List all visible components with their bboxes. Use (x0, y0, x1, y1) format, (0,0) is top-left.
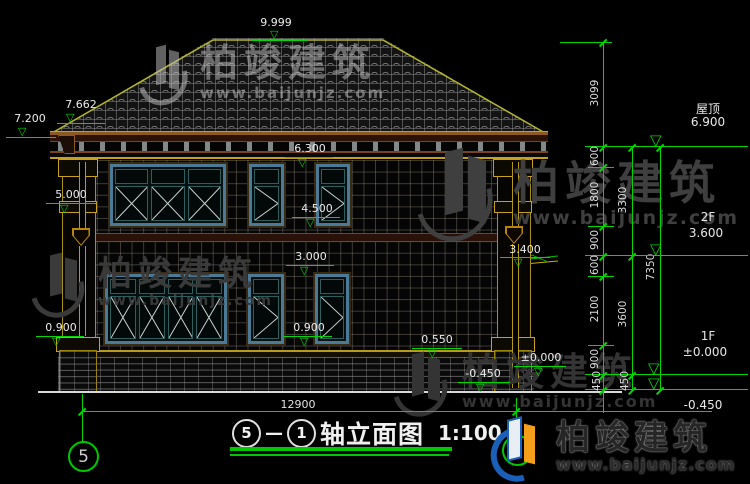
level-triangle-icon: ▽ (514, 258, 522, 268)
dim-chain-middle (632, 147, 633, 390)
title-axis-start: 5 (232, 419, 261, 448)
mark-0550-label: 0.550 (414, 333, 460, 346)
dim-450-a: 450 (591, 353, 603, 409)
dimension-layer: 9.999 ▽ 7.662 ▽ 7.200 ▽ 6.300 ▽ 5.000 ▽ … (0, 0, 750, 484)
title-underline-thick (230, 447, 452, 451)
dim-chain-outer (660, 147, 661, 390)
title-name: 轴立面图 (320, 415, 424, 451)
level-triangle-icon: ▽ (428, 349, 436, 359)
level-triangle-icon: ▽ (534, 367, 542, 377)
dim-total-line (82, 411, 712, 412)
mark-0900-left-label: 0.900 (38, 321, 84, 334)
mark-4500-label: 4.500 (294, 202, 340, 215)
mark-6300-label: 6.300 (286, 142, 334, 155)
level-1f-name: 1F (678, 329, 738, 343)
mark-3400-label: 3.400 (502, 243, 548, 256)
title-axis-end: 1 (287, 419, 316, 448)
mark-0900-center-label: 0.900 (286, 321, 332, 334)
level-triangle-icon: ▽ (306, 218, 314, 228)
level-below-value: -0.450 (668, 398, 738, 412)
title-underline-thin (230, 454, 449, 456)
dim-3099: 3099 (589, 65, 601, 121)
level-triangle-icon: ▽ (18, 127, 26, 137)
dim-3300: 3300 (617, 172, 629, 228)
level-triangle-icon: ▽ (52, 337, 60, 347)
level-triangle-icon: ▽ (648, 361, 660, 375)
level-triangle-icon: ▽ (648, 376, 660, 390)
mark-7662-label: 7.662 (56, 98, 106, 111)
brand-url: www.baijunjz.com (556, 455, 735, 474)
level-triangle-icon: ▽ (298, 158, 306, 168)
level-2f-value: 3.600 (676, 226, 736, 240)
brand-name: 柏竣建筑 (556, 421, 735, 455)
mark-5000-label: 5.000 (48, 188, 94, 201)
mark-neg450-label: -0.450 (458, 367, 508, 380)
level-triangle-icon: ▽ (60, 204, 68, 214)
dim-total-width: 12900 (268, 398, 328, 411)
drawing-title: 5 — 1 轴立面图 1:100 (232, 415, 502, 451)
level-2f-name: 2F (678, 210, 738, 224)
title-dash: — (265, 423, 283, 444)
level-roof-value: 6.900 (676, 115, 740, 129)
level-triangle-icon: ▽ (300, 266, 308, 276)
level-triangle-icon: ▽ (650, 133, 662, 147)
level-triangle-icon: ▽ (476, 383, 484, 393)
level-triangle-icon: ▽ (300, 337, 308, 347)
mark-7200-label: 7.200 (6, 112, 54, 125)
dim-450-b: 450 (619, 353, 631, 409)
level-1f-value: ±0.000 (672, 345, 738, 359)
level-triangle-icon: ▽ (270, 30, 278, 40)
mark-0000-label: ±0.000 (516, 351, 566, 364)
axis-bubble-5: 5 (68, 441, 99, 472)
dim-3600: 3600 (617, 286, 629, 342)
level-triangle-icon: ▽ (650, 242, 662, 256)
mark-3000-label: 3.000 (288, 250, 334, 263)
dim-2100: 2100 (589, 281, 601, 337)
level-triangle-icon: ▽ (66, 113, 74, 123)
brand-logo: 柏竣建筑 www.baijunjz.com (490, 418, 735, 476)
elevation-drawing-canvas: 柏竣建筑 www.baijunjz.com 柏竣建筑 www.baijunjz.… (0, 0, 750, 484)
brand-logo-icon (490, 418, 546, 476)
